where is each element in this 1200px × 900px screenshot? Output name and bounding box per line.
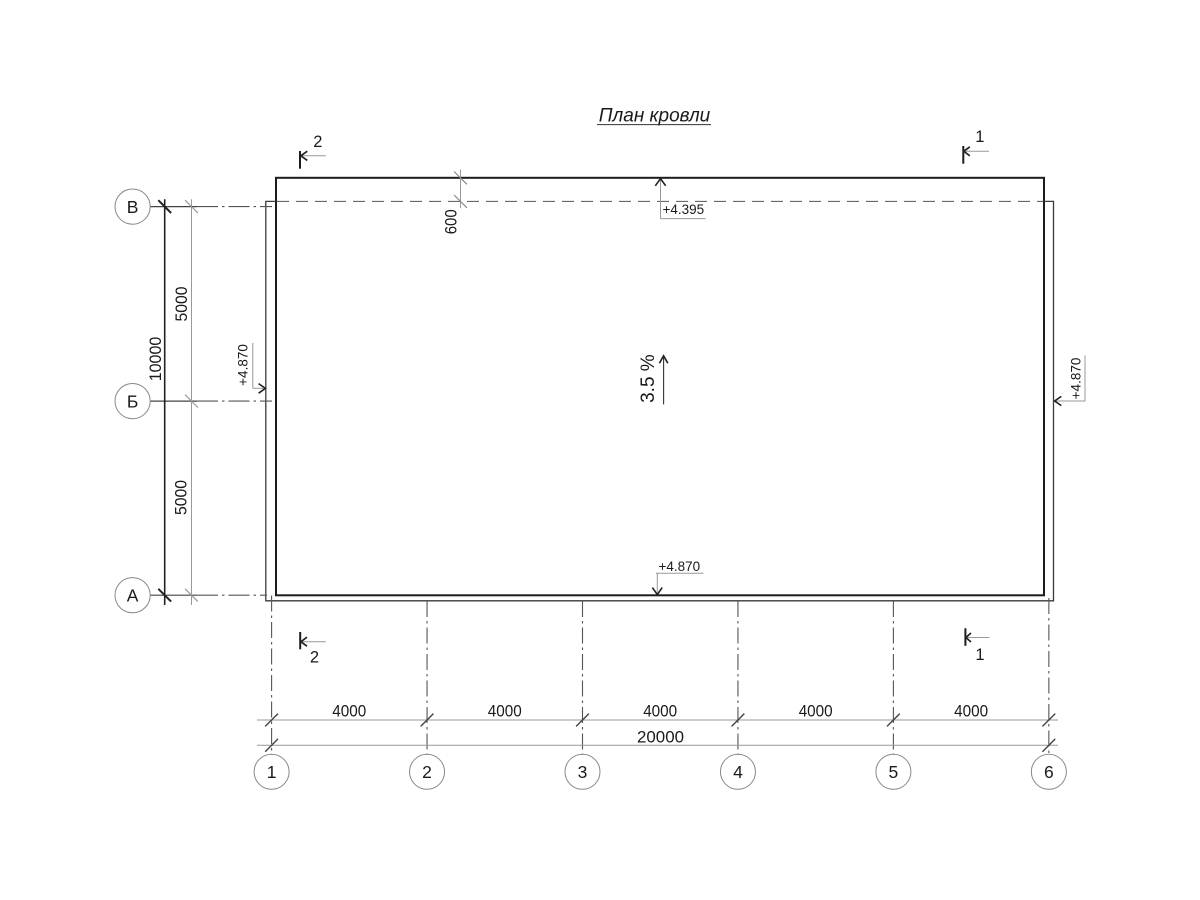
svg-text:5000: 5000 xyxy=(173,287,191,322)
svg-text:4000: 4000 xyxy=(488,702,522,720)
svg-text:План кровли: План кровли xyxy=(599,106,711,127)
svg-text:3: 3 xyxy=(578,762,588,782)
svg-text:А: А xyxy=(127,585,139,605)
svg-text:+4.870: +4.870 xyxy=(659,559,701,574)
svg-text:2: 2 xyxy=(310,649,319,667)
svg-text:+4.870: +4.870 xyxy=(1069,358,1084,400)
svg-text:4000: 4000 xyxy=(799,702,833,720)
svg-text:+4.395: +4.395 xyxy=(663,202,705,217)
svg-text:600: 600 xyxy=(442,209,460,234)
svg-text:1: 1 xyxy=(267,762,277,782)
svg-text:4000: 4000 xyxy=(643,702,677,720)
svg-text:5: 5 xyxy=(889,762,899,782)
svg-text:Б: Б xyxy=(127,391,138,411)
svg-text:3.5 %: 3.5 % xyxy=(638,354,659,403)
svg-text:2: 2 xyxy=(422,762,432,782)
svg-text:В: В xyxy=(127,197,139,217)
svg-text:+4.870: +4.870 xyxy=(235,344,250,386)
svg-text:4: 4 xyxy=(733,762,743,782)
svg-text:4000: 4000 xyxy=(954,702,988,720)
svg-text:4000: 4000 xyxy=(332,702,366,720)
svg-text:1: 1 xyxy=(975,646,984,664)
svg-text:5000: 5000 xyxy=(173,480,191,515)
svg-text:6: 6 xyxy=(1044,762,1054,782)
svg-text:20000: 20000 xyxy=(637,728,684,746)
svg-text:10000: 10000 xyxy=(147,337,165,382)
svg-text:2: 2 xyxy=(313,133,322,151)
svg-text:1: 1 xyxy=(975,128,984,146)
